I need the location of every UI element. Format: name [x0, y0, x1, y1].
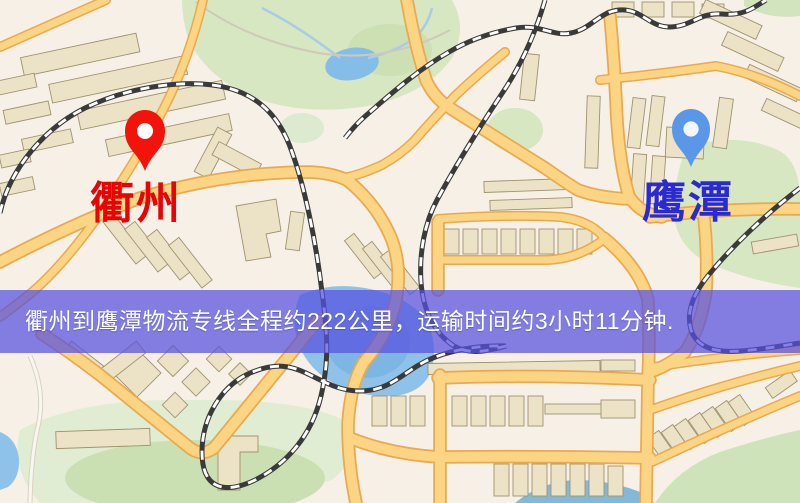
route-info-text: 衢州到鹰潭物流专线全程约222公里，运输时间约3小时11分钟.: [0, 290, 800, 353]
route-info-banner: 衢州到鹰潭物流专线全程约222公里，运输时间约3小时11分钟.: [0, 290, 800, 353]
map-image: 衢州 鹰潭: [0, 0, 800, 503]
destination-city-label: 鹰潭: [642, 178, 734, 227]
map-screenshot: 衢州 鹰潭 衢州到鹰潭物流专线全程约222公里，运输时间约3小时11分钟.: [0, 0, 800, 503]
origin-city-label: 衢州: [90, 179, 182, 228]
